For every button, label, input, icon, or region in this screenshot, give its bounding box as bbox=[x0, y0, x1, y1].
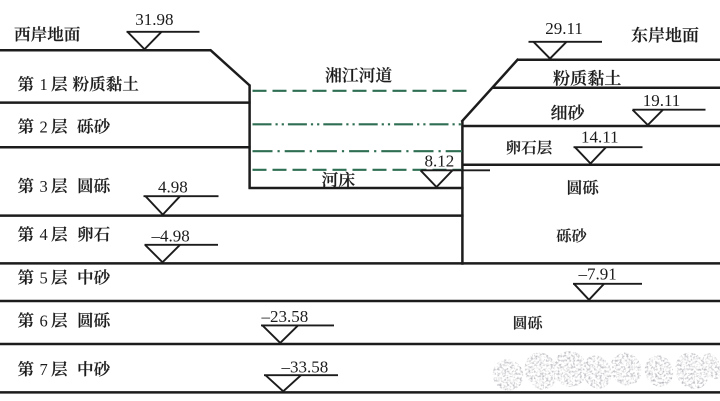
svg-text:2: 2 bbox=[40, 117, 48, 136]
svg-text:–7.91: –7.91 bbox=[578, 264, 617, 283]
svg-text:–33.58: –33.58 bbox=[281, 358, 329, 377]
svg-text:–4.98: –4.98 bbox=[151, 226, 190, 245]
svg-text:–23.58: –23.58 bbox=[261, 307, 309, 326]
svg-text:3: 3 bbox=[40, 177, 48, 196]
svg-text:6: 6 bbox=[40, 311, 48, 330]
svg-text:29.11: 29.11 bbox=[545, 19, 583, 38]
svg-text:31.98: 31.98 bbox=[135, 10, 173, 29]
svg-text:4: 4 bbox=[40, 225, 48, 244]
svg-text:8.12: 8.12 bbox=[425, 152, 455, 171]
svg-text:19.11: 19.11 bbox=[643, 91, 681, 110]
svg-text:5: 5 bbox=[40, 268, 48, 287]
svg-text:1: 1 bbox=[40, 75, 48, 94]
svg-text:4.98: 4.98 bbox=[158, 177, 188, 196]
svg-text:7: 7 bbox=[40, 360, 48, 379]
svg-text:14.11: 14.11 bbox=[581, 128, 619, 147]
